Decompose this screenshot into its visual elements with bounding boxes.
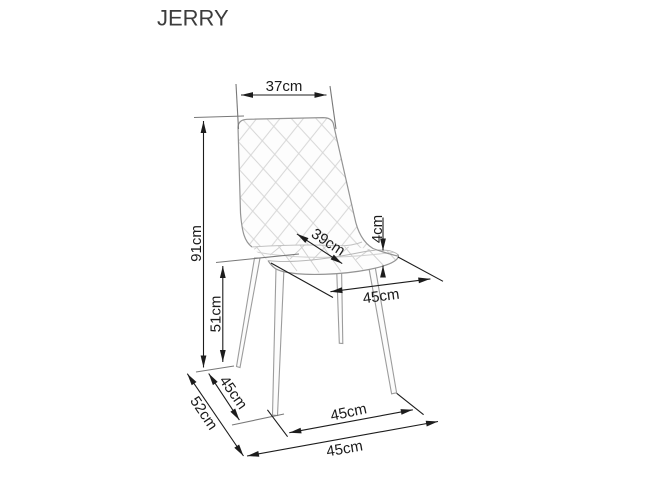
svg-text:4cm: 4cm — [369, 215, 386, 243]
svg-text:37cm: 37cm — [266, 78, 303, 95]
svg-text:JERRY: JERRY — [157, 6, 229, 31]
svg-text:91cm: 91cm — [188, 225, 205, 262]
svg-text:51cm: 51cm — [208, 296, 225, 333]
